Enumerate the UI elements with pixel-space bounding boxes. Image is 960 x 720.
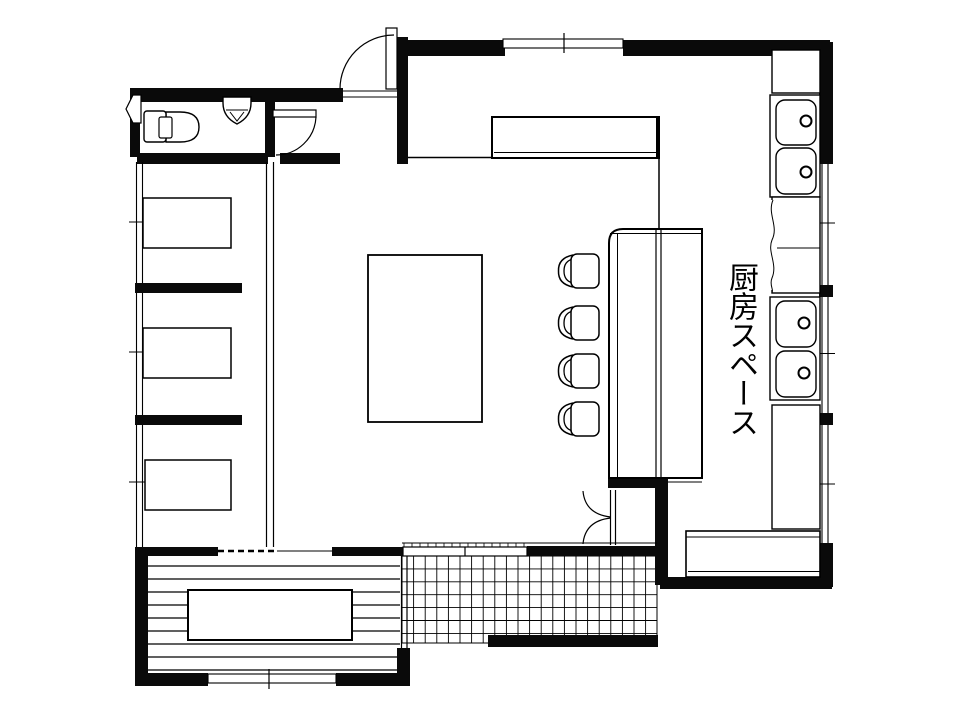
wc-bottom-wall-right: [280, 153, 340, 164]
bed-2: [143, 328, 231, 378]
sink-2-drain: [801, 167, 812, 178]
vestibule-wall: [265, 95, 275, 157]
counter-top-right: [772, 50, 820, 93]
toilet-seat: [159, 117, 172, 138]
deck-left-wall: [135, 547, 148, 686]
right-wall-stub-1: [819, 285, 833, 297]
counter-long: [772, 405, 820, 529]
chair-4-seat: [571, 402, 599, 436]
counter-bottom: [686, 531, 820, 577]
deck-bottom-wall-left: [135, 673, 208, 686]
closet-door-arc-bottom: [583, 518, 611, 544]
floorplan-svg: [0, 0, 960, 720]
wc-door-arc: [276, 117, 316, 155]
sink-1-drain: [801, 116, 812, 127]
deck-window: [208, 674, 336, 683]
top-window: [503, 39, 623, 48]
floor-plan-page: 厨房スペース: [0, 0, 960, 720]
genkan-bottom-wall: [488, 635, 658, 647]
deck-top-wall-right: [332, 547, 405, 556]
sink-3-drain: [799, 318, 810, 329]
entry-side-wall: [397, 37, 408, 164]
serving-shelf: [492, 117, 659, 158]
chair-1-seat: [571, 254, 599, 288]
bed-1: [143, 198, 231, 248]
dining-table: [368, 255, 482, 422]
right-wall-top: [819, 42, 833, 164]
right-wall-stub-2: [819, 413, 833, 425]
deck-table: [188, 590, 352, 640]
kitchen-side-wall: [655, 487, 668, 585]
sink-4-drain: [799, 368, 810, 379]
wc-door-leaf: [273, 110, 316, 117]
bedroom-partition-1: [135, 283, 242, 293]
top-wall-left: [398, 40, 505, 56]
deck-corner-wall: [397, 648, 410, 686]
counter-mid: [772, 197, 820, 293]
kitchen-space-label: 厨房スペース: [716, 262, 762, 442]
chair-3-seat: [571, 354, 599, 388]
entry-door-leaf: [386, 28, 397, 89]
genkan-top-wall: [527, 546, 657, 556]
closet-door-arc-top: [583, 491, 611, 517]
chair-2-seat: [571, 306, 599, 340]
bedroom-partition-2: [135, 415, 242, 425]
wc-door-arrow: [126, 95, 141, 123]
wc-bottom-wall-left: [137, 153, 268, 164]
bed-3: [145, 460, 231, 510]
kitchen-bottom-wall: [660, 577, 832, 589]
